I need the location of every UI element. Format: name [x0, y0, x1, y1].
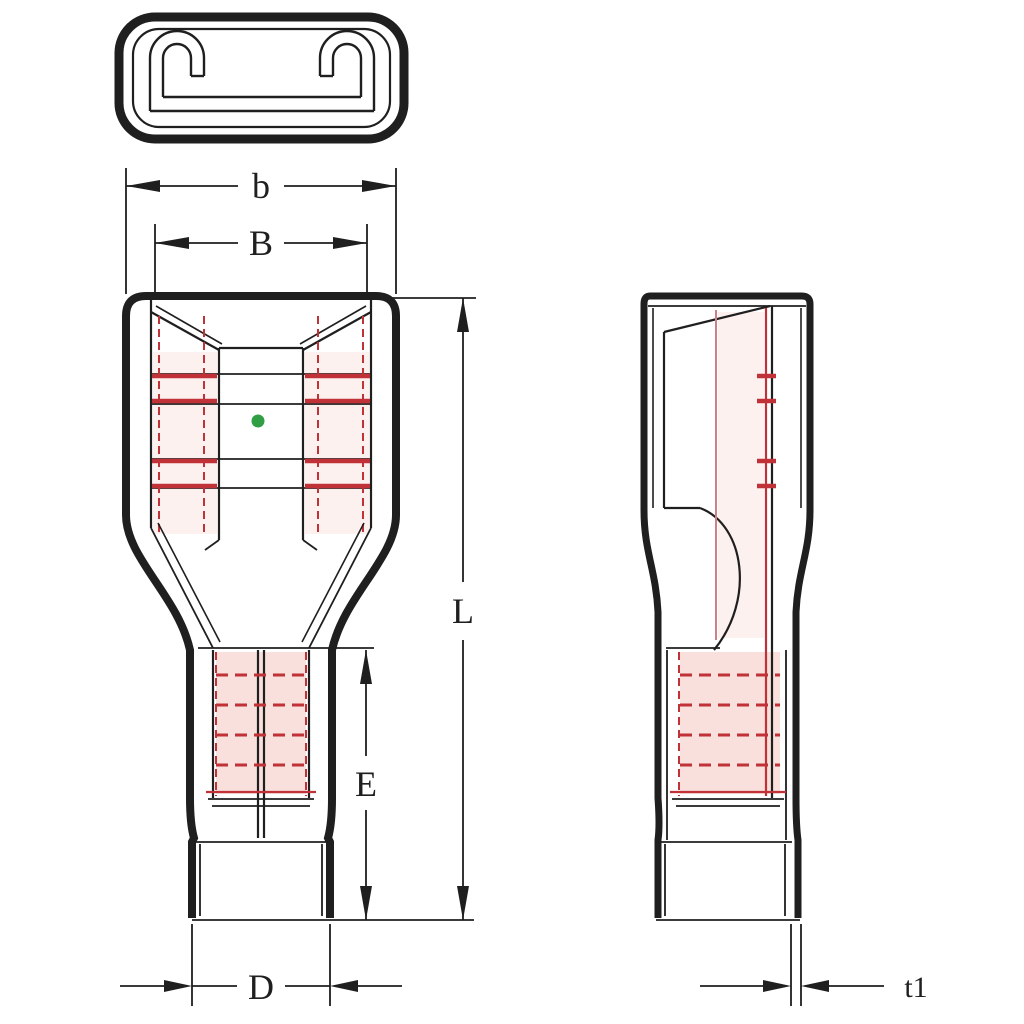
dimension-D: D [120, 924, 402, 1007]
neck-left-inner [158, 523, 220, 642]
crimp-area-tint [216, 652, 306, 794]
insulated-terminal-drawing: b B L E D t1 [0, 0, 1024, 1024]
dim-t1-label: t1 [904, 971, 927, 1004]
dim-D-label: D [248, 967, 274, 1007]
funnel-left [151, 312, 219, 350]
dim-B-label: B [249, 223, 273, 263]
dim-E-label: E [355, 764, 377, 804]
left-contact-tint [153, 352, 217, 534]
dim-E-arrow-top [360, 650, 372, 684]
funnel-left-echo [156, 306, 222, 344]
funnel-right-echo [300, 306, 366, 344]
left-hook-inner [163, 44, 191, 97]
dimension-t1: t1 [700, 924, 928, 1006]
side-sleeve-inner-walls [665, 844, 785, 916]
dimension-L: L [390, 298, 476, 920]
dim-E-arrow-bottom [360, 886, 372, 920]
dimension-E: E [355, 650, 377, 920]
dim-L-label: L [452, 591, 474, 631]
neck-right-inner [302, 523, 364, 642]
funnel-right [303, 312, 371, 350]
sleeve-inner-walls [200, 844, 322, 916]
dim-D-arrow-left [164, 980, 192, 992]
dim-D-arrow-right [330, 980, 358, 992]
top-view [119, 17, 404, 139]
right-contact-tint [305, 352, 369, 534]
dim-B-arrow-right [333, 237, 367, 249]
receptacle-channel [219, 348, 303, 540]
dimension-B: B [155, 223, 367, 294]
side-contact-tint [718, 312, 764, 638]
wire-indicator-dot [252, 415, 265, 428]
crimp-bottom-lines [208, 799, 314, 806]
dim-t1-arrow-left [763, 980, 791, 992]
dim-t1-arrow-right [801, 980, 829, 992]
channel-bottom-flare [205, 540, 317, 550]
technical-drawing-canvas: b B L E D t1 [0, 0, 1024, 1024]
dim-L-arrow-top [457, 298, 469, 332]
dim-B-arrow-left [155, 237, 189, 249]
dim-b-arrow-left [126, 180, 160, 192]
dim-b-label: b [252, 166, 270, 206]
dim-t1-extension-lines [791, 924, 801, 1006]
dim-b-arrow-right [362, 180, 396, 192]
front-view [126, 296, 474, 920]
side-crimp-bottom-lines [672, 799, 784, 806]
right-hook-inner [333, 44, 361, 97]
side-view [644, 296, 810, 920]
dim-L-arrow-bottom [457, 886, 469, 920]
